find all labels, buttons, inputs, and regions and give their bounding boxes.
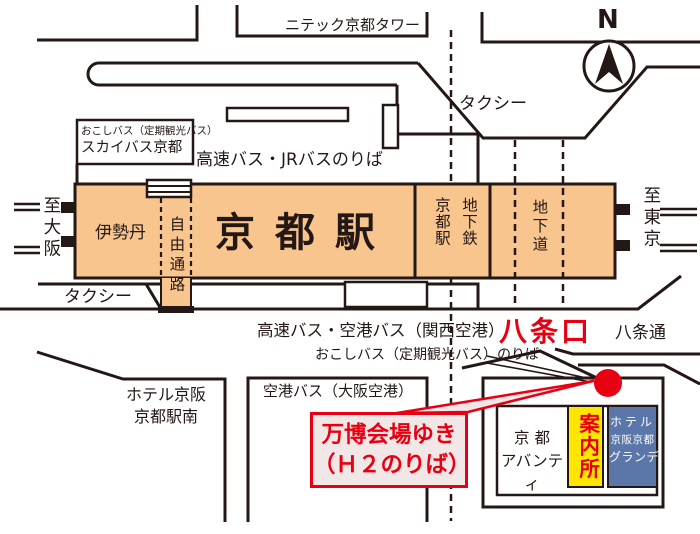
taxi-bay-diagonal (146, 284, 161, 309)
stairs-icon (147, 180, 191, 197)
kyoto-station-guide-map: ニテック京都タワー N タクシー おこしバス（定期観光バス） スカイバス京都 高… (0, 0, 700, 534)
airport-bus-osaka-label: 空港バス（大阪空港） (263, 382, 413, 401)
subway-kyoto-station-label: 地下鉄 京都駅 (424, 197, 482, 277)
road-top-left (37, 5, 197, 40)
rail-tick-east-1 (614, 204, 630, 215)
hachijo-street-north-edge (555, 349, 700, 354)
okoshi-sky-bus-label-line2: スカイバス京都 (81, 139, 182, 157)
isetan-label: 伊勢丹 (95, 223, 146, 244)
hachijo-exit-label: 八条口 (499, 314, 592, 349)
taxi-south-label: タクシー (64, 287, 132, 308)
bus-stop-marker (594, 369, 622, 397)
hotel-grande-label: ホテル 京阪京都 グランデ (609, 416, 656, 463)
bus-island-small (383, 105, 398, 148)
info-center-label: 案内所 (574, 413, 600, 481)
hotel-grande-label-line2: 京阪京都 (609, 435, 656, 446)
road-top-right (482, 12, 700, 42)
rail-tracks-east (660, 209, 697, 251)
hotel-grande-label-line3: グランデ (609, 451, 656, 463)
hachijo-street-label: 八条通 (615, 323, 666, 344)
underground-passage-label: 地下道 (529, 199, 548, 255)
hotel-grande-label-line1: ホテル (609, 416, 656, 428)
bus-loop-road (88, 63, 418, 85)
to-tokyo-label: 至東京 (639, 186, 661, 251)
kyoto-avanti-label: 京 都 アバンティ (498, 427, 566, 496)
okoshi-sky-bus-label-line1: おこしバス（定期観光バス） (81, 125, 218, 138)
highway-airport-bus-label: 高速バス・空港バス（関西空港） (257, 321, 505, 342)
hotel-keihan-south-label: ホテル京阪 京都駅南 (120, 384, 212, 428)
nidec-tower-label: ニテック京都タワー (285, 16, 420, 35)
kyoto-station-label: 京都駅 (180, 208, 410, 258)
taxi-north-label: タクシー (459, 94, 527, 115)
compass-n-label: N (597, 4, 619, 37)
free-passage-end-bar (158, 306, 194, 313)
to-osaka-label: 至大阪 (39, 196, 61, 261)
rail-tick-east-2 (614, 240, 630, 251)
expo-shuttle-callout: 万博会場ゆき （Ｈ２のりば） (310, 412, 468, 488)
okoshi-bus-stop-label: おこしバス（定期観光バス）のりば (315, 347, 539, 365)
hotel-keihan-south-block (37, 352, 225, 522)
rail-tracks-west (14, 204, 40, 253)
rail-tick-west-1 (61, 202, 76, 213)
bus-island-long (227, 108, 348, 121)
south-road-island (345, 282, 427, 307)
rail-tick-west-2 (61, 236, 76, 247)
highway-jr-bus-label: 高速バス・JRバスのりば (196, 150, 383, 171)
